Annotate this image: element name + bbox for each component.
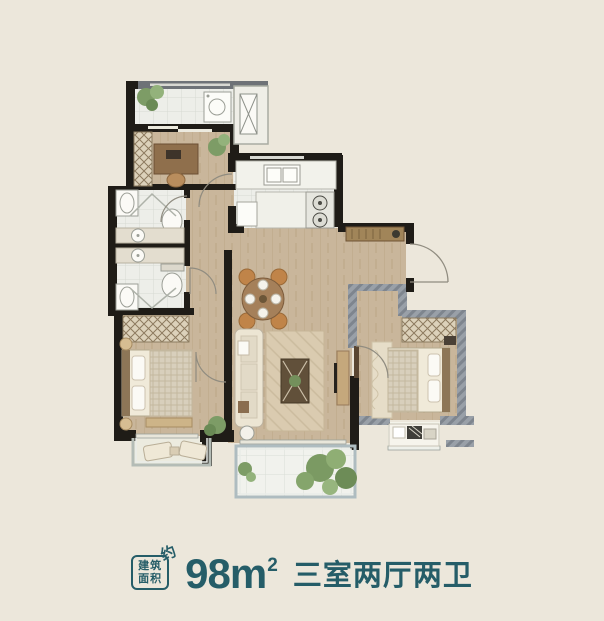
- master-wardrobe: [123, 316, 189, 342]
- pillow: [132, 386, 145, 410]
- vanity-counter: [116, 228, 184, 243]
- bay-window: [389, 424, 439, 446]
- floor-plan-image: [0, 0, 604, 616]
- area-value: 98m2: [185, 556, 277, 593]
- bed-bench: [146, 418, 192, 427]
- nightstand: [120, 338, 132, 350]
- blanket: [388, 350, 418, 412]
- throw-pillow: [238, 401, 249, 413]
- tv-cabinet: [337, 351, 349, 405]
- toilet: [162, 273, 182, 297]
- area-exponent: 2: [267, 555, 278, 576]
- dining-area: [239, 269, 287, 329]
- stamp-suffix: 约: [159, 544, 179, 562]
- pillow: [393, 427, 405, 438]
- tv: [334, 363, 337, 393]
- layout-text: 三室两厅两卫: [293, 562, 473, 591]
- door-leaf: [354, 346, 359, 378]
- pillow: [428, 380, 440, 402]
- sink: [116, 284, 138, 310]
- nightstand: [120, 418, 132, 430]
- entry-door-arc: [410, 244, 448, 282]
- stamp-line2: 面积: [133, 573, 167, 586]
- floor-plan: [0, 0, 604, 616]
- fridge: [237, 202, 257, 226]
- kitchen-island: [256, 192, 306, 228]
- equipment-platform: [234, 86, 268, 144]
- pillow: [428, 354, 440, 376]
- dresser: [444, 336, 456, 345]
- master-bedroom: [120, 316, 192, 430]
- blanket: [150, 350, 192, 416]
- pillow: [132, 356, 145, 380]
- area-stamp: 建筑 面积 约: [131, 555, 169, 590]
- study-wardrobe: [134, 132, 152, 186]
- side-table: [240, 426, 254, 440]
- vanity-counter: [116, 248, 184, 263]
- bath-corridor-floor: [186, 188, 228, 258]
- plant-icon: [289, 375, 301, 387]
- flower-icon: [392, 230, 400, 238]
- pillow: [424, 429, 436, 439]
- desk-chair: [167, 173, 185, 187]
- throw-pillow: [238, 341, 249, 355]
- caption: 建筑 面积 约 98m2 三室两厅两卫: [0, 541, 604, 593]
- small-table: [170, 447, 179, 455]
- stamp-line1: 建筑: [133, 560, 167, 573]
